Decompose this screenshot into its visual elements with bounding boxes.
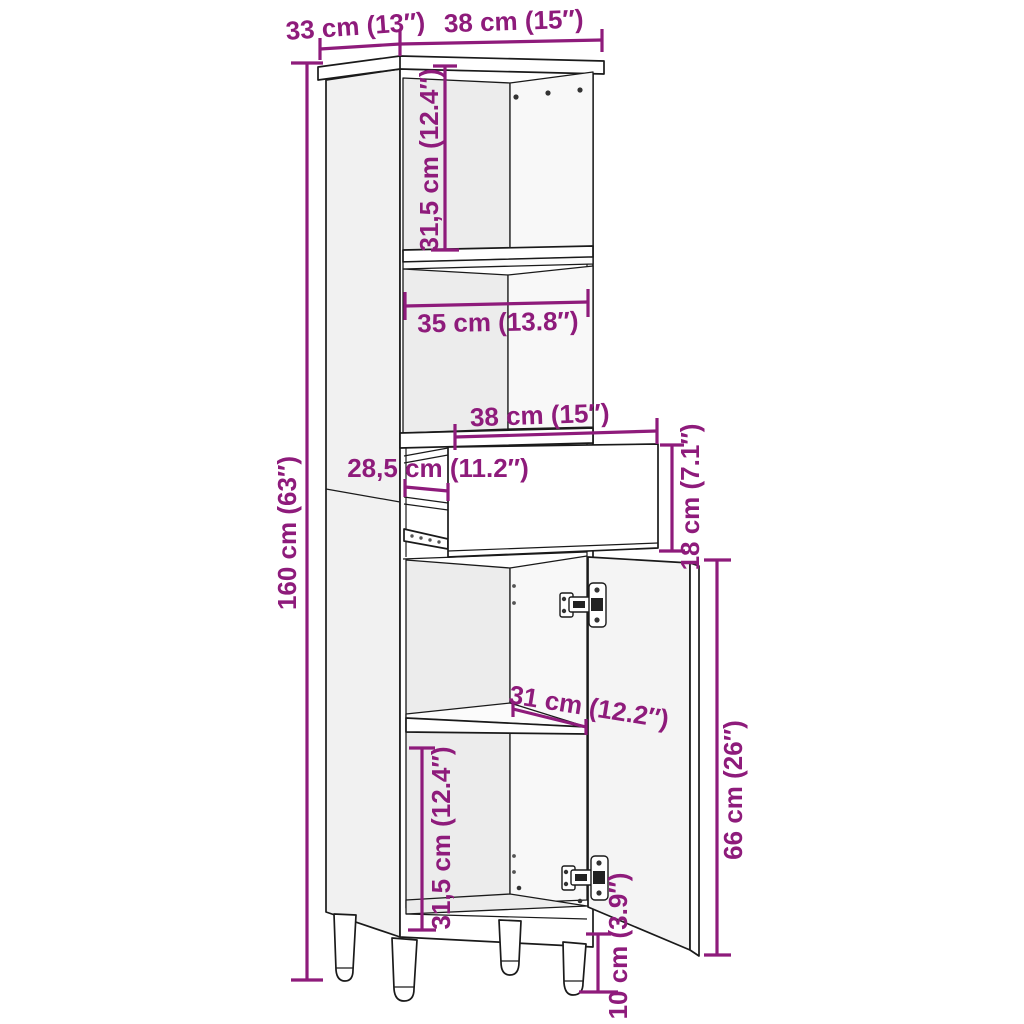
screw — [545, 90, 550, 95]
dim-depth-width-top: 33 cm (13″) 38 cm (15″) — [285, 4, 602, 60]
cabinet-drawing: 33 cm (13″) 38 cm (15″) 160 cm (63″) 31,… — [0, 0, 1024, 1024]
dim-total-height: 160 cm (63″) — [272, 63, 323, 980]
dim-door-height: 66 cm (26″) — [704, 560, 748, 955]
leg-front-right — [563, 942, 586, 995]
dim-label-drawer-extension: 28,5 cm (11.2″) — [347, 453, 529, 483]
dim-line — [320, 40, 602, 49]
dim-label-leg-height: 10 cm (3.9″) — [603, 873, 633, 1020]
dim-label-upper-compartment: 31,5 cm (12.4″) — [414, 68, 444, 251]
dim-label-width: 38 cm (15″) — [443, 4, 584, 39]
dim-drawer-height: 18 cm (7.1″) — [659, 424, 705, 571]
screw — [578, 899, 583, 904]
dim-label-door-height: 66 cm (26″) — [718, 720, 748, 860]
dim-label-inner-width: 35 cm (13.8″) — [417, 306, 579, 339]
dim-label-drawer-width: 38 cm (15″) — [469, 398, 610, 433]
leg-front-left — [392, 938, 417, 1001]
cabinet — [318, 56, 699, 1001]
dim-label-depth: 33 cm (13″) — [285, 6, 426, 46]
left-side-panel — [326, 69, 400, 937]
dim-label-lower-compartment: 31,5 cm (12.4″) — [426, 746, 456, 929]
door-edge — [690, 563, 699, 956]
shelf-pin — [512, 601, 516, 605]
screw — [577, 87, 582, 92]
screw — [513, 94, 518, 99]
leg-back-left — [334, 914, 356, 981]
shelf-pin — [512, 584, 516, 588]
dimension-diagram: 33 cm (13″) 38 cm (15″) 160 cm (63″) 31,… — [0, 0, 1024, 1024]
shelf-pin — [512, 870, 516, 874]
dim-label-drawer-height: 18 cm (7.1″) — [675, 424, 705, 571]
shelf-pin — [512, 854, 516, 858]
leg-back-right — [499, 920, 521, 975]
screw — [517, 886, 522, 891]
dim-label-total-height: 160 cm (63″) — [272, 456, 302, 610]
